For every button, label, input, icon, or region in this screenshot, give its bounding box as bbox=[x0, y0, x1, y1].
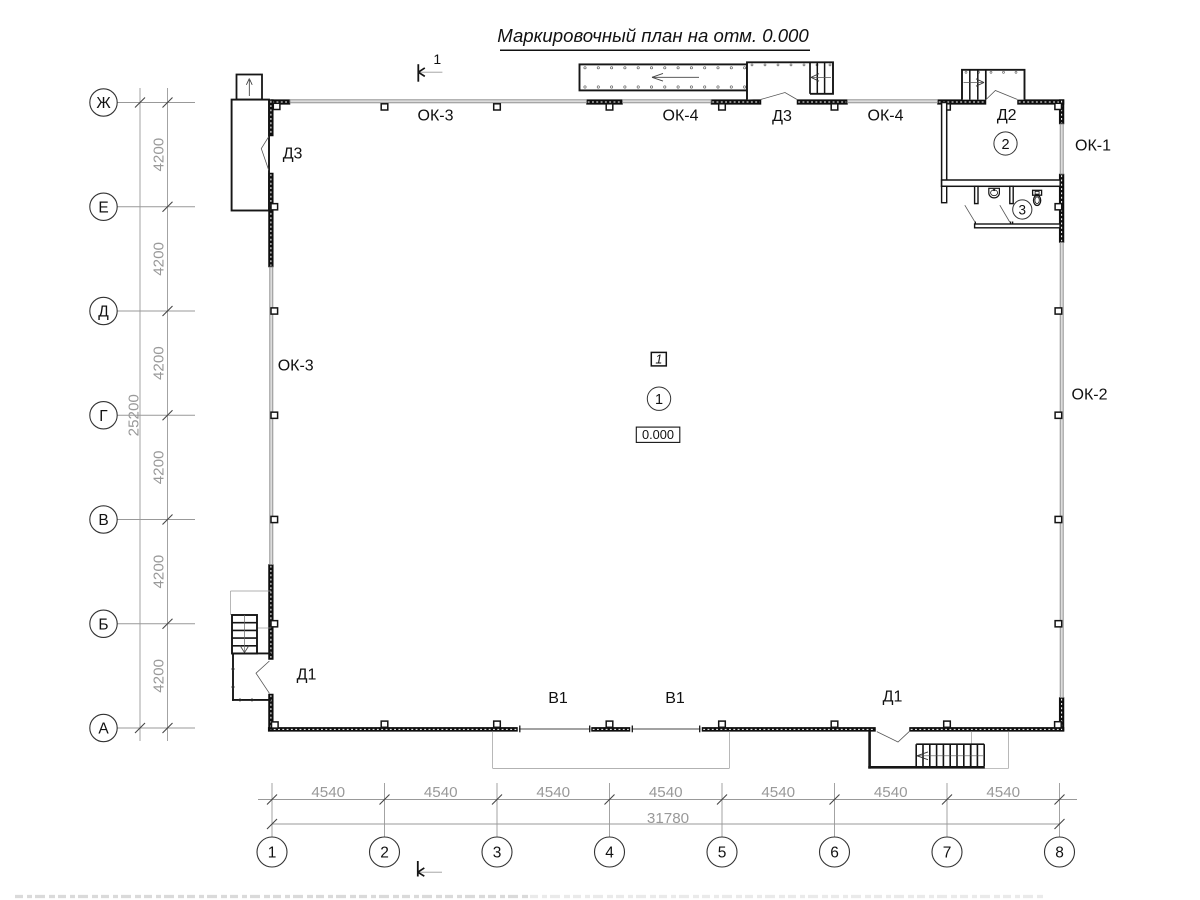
svg-text:7: 7 bbox=[943, 844, 952, 861]
svg-text:4540: 4540 bbox=[986, 784, 1020, 801]
svg-text:Д3: Д3 bbox=[283, 145, 303, 162]
svg-text:8: 8 bbox=[1055, 844, 1064, 861]
svg-text:0.000: 0.000 bbox=[642, 427, 674, 442]
svg-text:4200: 4200 bbox=[151, 138, 168, 172]
svg-text:4540: 4540 bbox=[874, 784, 908, 801]
svg-text:ОК-1: ОК-1 bbox=[1075, 138, 1111, 155]
svg-text:4: 4 bbox=[605, 844, 614, 861]
svg-text:4540: 4540 bbox=[536, 784, 570, 801]
svg-text:6: 6 bbox=[830, 844, 839, 861]
svg-text:ОК-2: ОК-2 bbox=[1072, 387, 1108, 404]
svg-text:1: 1 bbox=[268, 844, 277, 861]
svg-text:4200: 4200 bbox=[151, 659, 168, 693]
svg-text:Д: Д bbox=[98, 304, 109, 321]
svg-text:25200: 25200 bbox=[126, 394, 143, 436]
svg-text:4200: 4200 bbox=[151, 346, 168, 380]
svg-text:ОК-4: ОК-4 bbox=[868, 108, 904, 125]
svg-text:В1: В1 bbox=[665, 690, 685, 707]
svg-text:А: А bbox=[98, 721, 109, 738]
svg-text:31780: 31780 bbox=[647, 810, 689, 827]
svg-text:Маркировочный план на отм. 0.0: Маркировочный план на отм. 0.000 bbox=[497, 25, 809, 46]
svg-text:Д3: Д3 bbox=[772, 108, 792, 125]
svg-text:1: 1 bbox=[655, 352, 662, 366]
svg-text:Ж: Ж bbox=[96, 95, 111, 112]
svg-text:3: 3 bbox=[493, 844, 502, 861]
svg-text:ОК-4: ОК-4 bbox=[663, 108, 699, 125]
svg-text:4540: 4540 bbox=[649, 784, 683, 801]
svg-text:Е: Е bbox=[98, 199, 108, 216]
svg-text:Д1: Д1 bbox=[883, 689, 903, 706]
svg-text:4540: 4540 bbox=[424, 784, 458, 801]
svg-text:4540: 4540 bbox=[761, 784, 795, 801]
svg-text:4200: 4200 bbox=[151, 450, 168, 484]
svg-text:ОК-3: ОК-3 bbox=[418, 108, 454, 125]
svg-text:Д2: Д2 bbox=[997, 107, 1017, 124]
svg-text:1: 1 bbox=[655, 392, 663, 408]
svg-text:В1: В1 bbox=[548, 690, 568, 707]
svg-text:2: 2 bbox=[380, 844, 389, 861]
svg-text:4200: 4200 bbox=[151, 555, 168, 589]
svg-text:Б: Б bbox=[98, 616, 108, 633]
svg-text:2: 2 bbox=[1001, 137, 1009, 153]
svg-text:3: 3 bbox=[1019, 203, 1027, 218]
svg-text:В: В bbox=[98, 512, 108, 529]
svg-text:Г: Г bbox=[99, 408, 108, 425]
svg-text:1: 1 bbox=[433, 51, 441, 67]
svg-text:4540: 4540 bbox=[311, 784, 345, 801]
svg-text:ОК-3: ОК-3 bbox=[278, 358, 314, 375]
svg-text:5: 5 bbox=[718, 844, 727, 861]
svg-text:Д1: Д1 bbox=[297, 667, 317, 684]
svg-text:4200: 4200 bbox=[151, 242, 168, 276]
